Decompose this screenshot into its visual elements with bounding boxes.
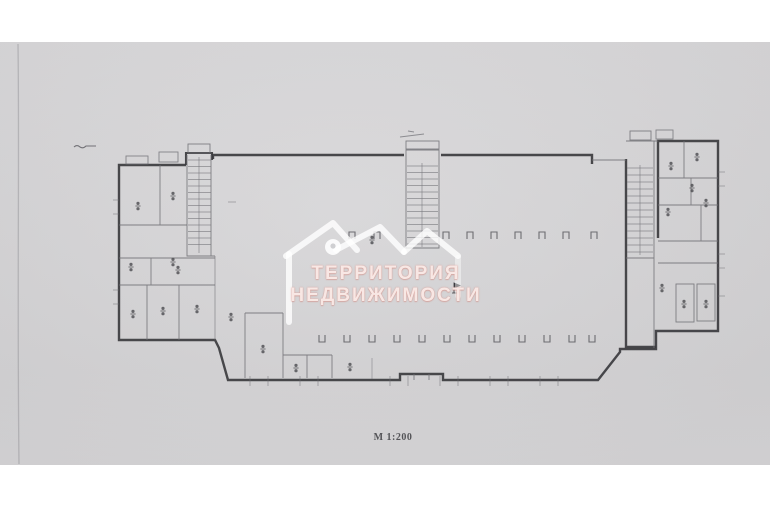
window-ticks bbox=[113, 172, 725, 386]
scanned-photo-page: ТЕРРИТОРИЯ НЕДВИЖИМОСТИ М 1:200 bbox=[0, 0, 770, 510]
hall-mark bbox=[452, 283, 460, 293]
scale-label: М 1:200 bbox=[374, 432, 413, 443]
scan-artifacts bbox=[18, 44, 424, 464]
hall-columns bbox=[319, 232, 597, 342]
outer-walls bbox=[119, 141, 718, 380]
interior-partitions bbox=[119, 131, 718, 380]
stair-treads bbox=[188, 157, 653, 255]
